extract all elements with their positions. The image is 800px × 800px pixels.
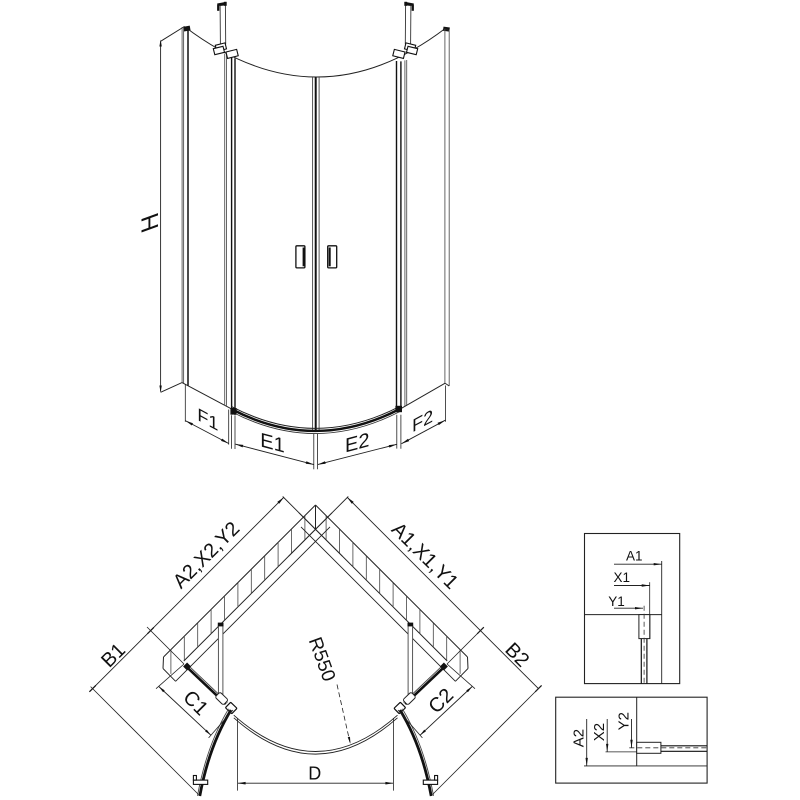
svg-text:X2: X2 bbox=[591, 723, 608, 741]
svg-text:Y1: Y1 bbox=[608, 594, 625, 609]
svg-text:X1: X1 bbox=[614, 570, 631, 585]
svg-text:A2: A2 bbox=[571, 729, 588, 747]
svg-text:A1: A1 bbox=[626, 548, 643, 563]
svg-text:Y2: Y2 bbox=[616, 712, 633, 730]
svg-text:D: D bbox=[308, 763, 321, 783]
